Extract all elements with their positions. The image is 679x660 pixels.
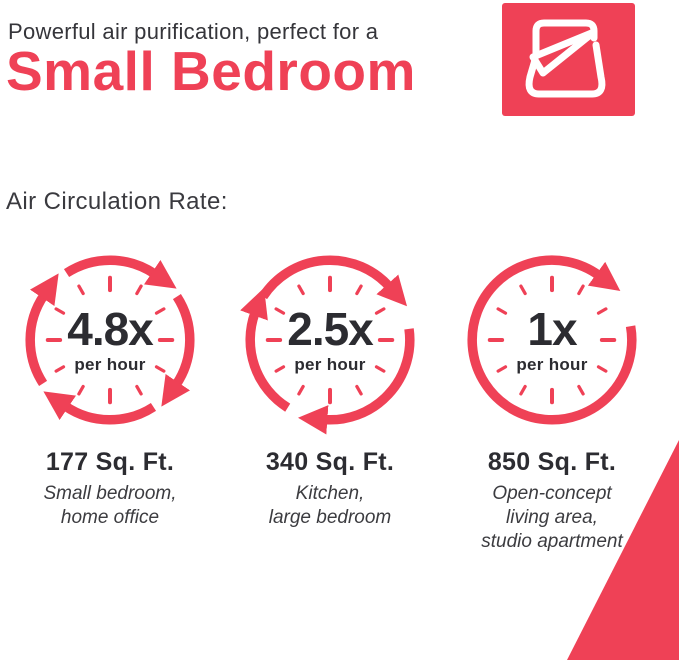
room-types: Small bedroom, home office <box>0 482 220 530</box>
section-label: Air Circulation Rate: <box>6 188 228 216</box>
circulation-arrows-graphic <box>457 245 647 435</box>
clock-icon: 1x per hour <box>457 245 647 435</box>
infographic: Powerful air purification, perfect for a… <box>0 0 679 660</box>
bed-duvet-icon <box>502 3 635 116</box>
headline: Small Bedroom <box>6 44 416 99</box>
area-value: 850 Sq. Ft. <box>442 448 662 477</box>
clock-icon: 4.8x per hour <box>15 245 205 435</box>
circulation-arrows-graphic <box>15 245 205 435</box>
circulation-row: 4.8x per hour 177 Sq. Ft. Small bedroom,… <box>0 245 679 565</box>
room-types: Kitchen, large bedroom <box>220 482 440 530</box>
area-value: 177 Sq. Ft. <box>0 448 220 477</box>
circulation-arrows-graphic <box>235 245 425 435</box>
bed-icon <box>502 3 635 116</box>
circulation-card: 4.8x per hour 177 Sq. Ft. Small bedroom,… <box>0 245 220 530</box>
area-value: 340 Sq. Ft. <box>220 448 440 477</box>
circulation-card: 1x per hour 850 Sq. Ft. Open-concept liv… <box>442 245 662 554</box>
clock-icon: 2.5x per hour <box>235 245 425 435</box>
circulation-card: 2.5x per hour 340 Sq. Ft. Kitchen, large… <box>220 245 440 530</box>
